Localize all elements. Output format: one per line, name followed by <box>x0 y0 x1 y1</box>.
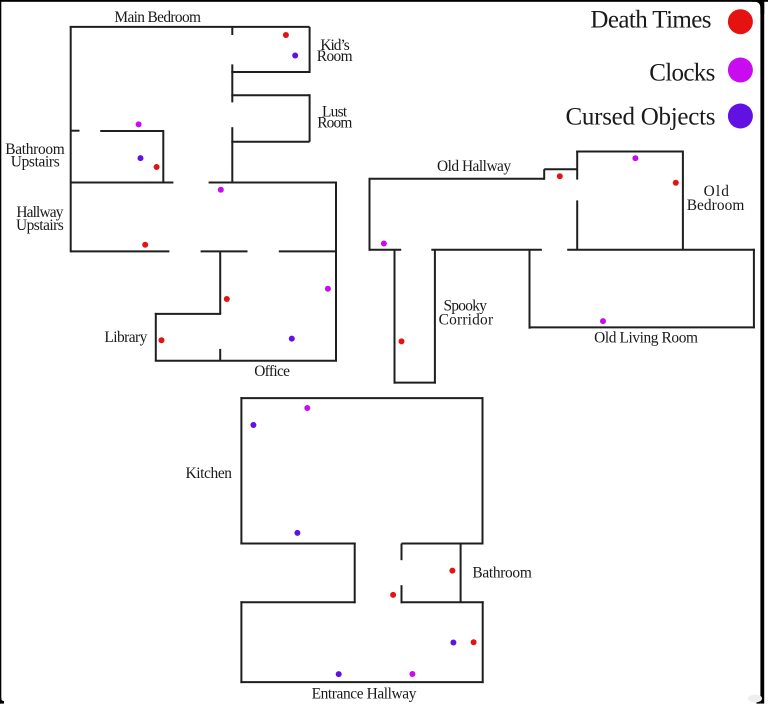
svg-text:Kitchen: Kitchen <box>186 465 233 482</box>
svg-text:Room: Room <box>317 48 353 65</box>
svg-text:Death Times: Death Times <box>590 7 711 34</box>
svg-text:Office: Office <box>254 363 290 380</box>
svg-text:Old Living Room: Old Living Room <box>594 330 698 347</box>
svg-text:Cursed Objects: Cursed Objects <box>566 103 716 130</box>
svg-text:Upstairs: Upstairs <box>16 217 64 234</box>
svg-text:Bedroom: Bedroom <box>687 197 745 214</box>
svg-text:Main Bedroom: Main Bedroom <box>114 9 201 26</box>
svg-text:Entrance Hallway: Entrance Hallway <box>312 686 417 703</box>
svg-text:Old Hallway: Old Hallway <box>437 158 511 175</box>
svg-text:Upstairs: Upstairs <box>11 153 60 170</box>
svg-text:Room: Room <box>317 114 352 131</box>
svg-text:Corridor: Corridor <box>439 311 494 328</box>
svg-text:Bathroom: Bathroom <box>472 565 531 582</box>
svg-text:Library: Library <box>104 329 147 346</box>
svg-text:Clocks: Clocks <box>649 59 715 86</box>
